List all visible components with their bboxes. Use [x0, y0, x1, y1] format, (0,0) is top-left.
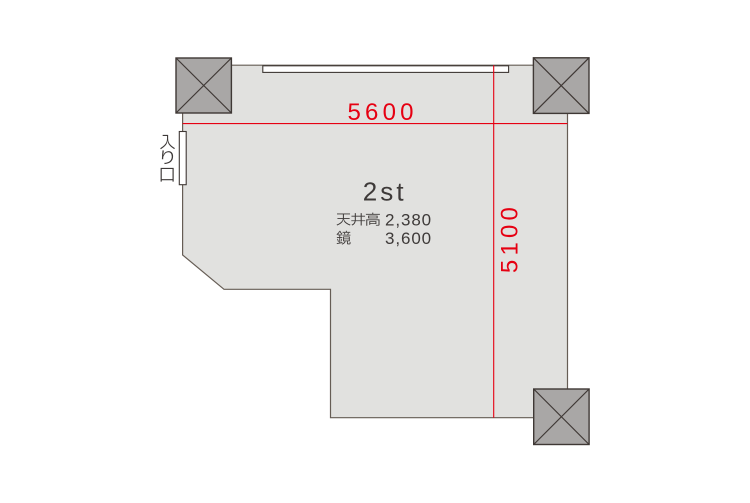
svg-text:5100: 5100 — [497, 203, 524, 273]
svg-text:3,600: 3,600 — [385, 229, 432, 248]
svg-text:5600: 5600 — [348, 99, 418, 126]
svg-text:2,380: 2,380 — [385, 211, 432, 230]
svg-text:2st: 2st — [363, 177, 407, 207]
